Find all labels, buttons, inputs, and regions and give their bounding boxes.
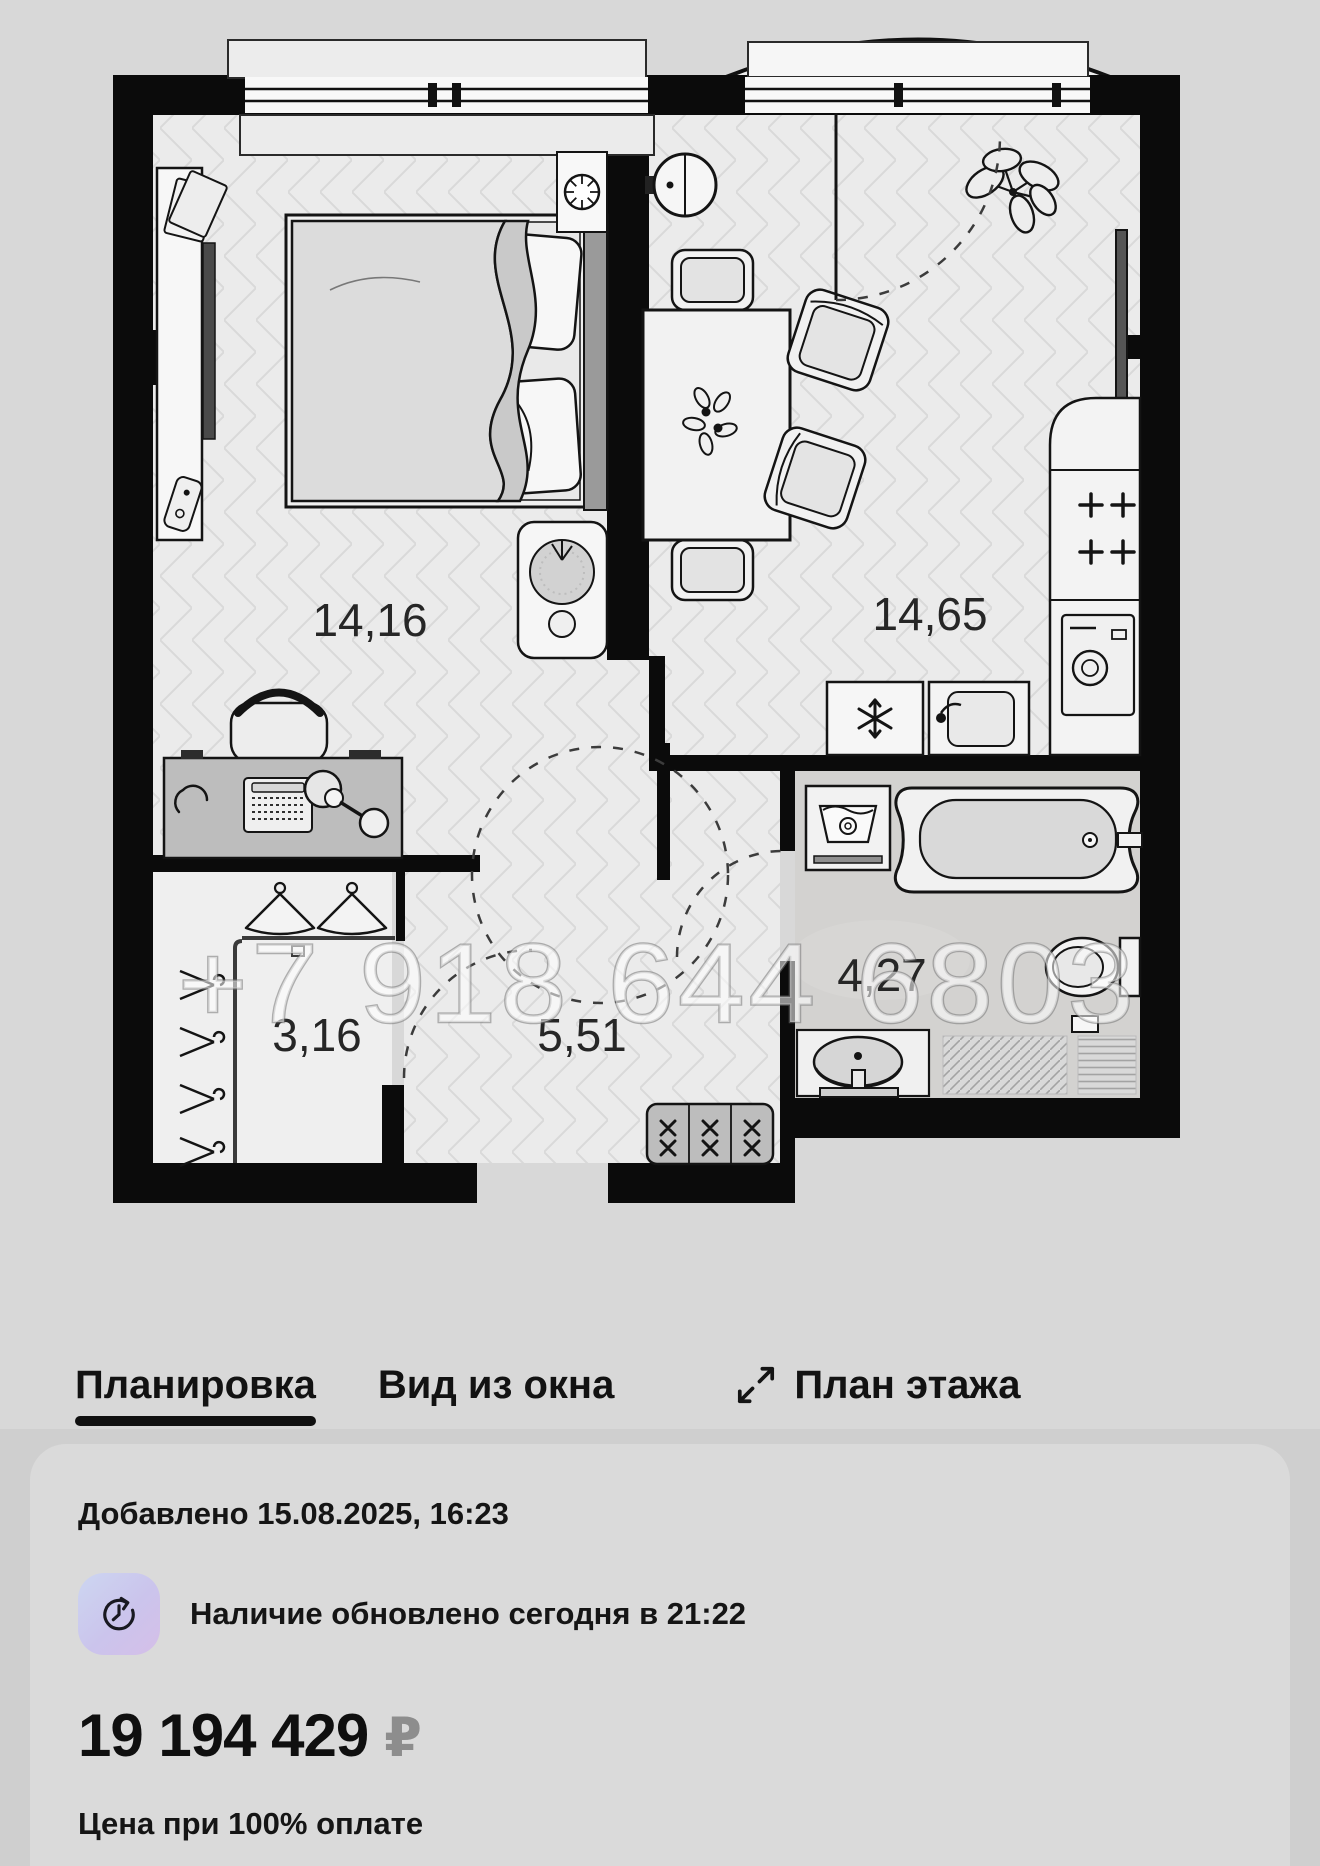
price-value: 19 194 429 (78, 1701, 368, 1770)
price-row: 19 194 429 ₽ (78, 1701, 1242, 1770)
info-card: Добавлено 15.08.2025, 16:23 Наличие обно… (30, 1444, 1290, 1866)
tab-floor-plan[interactable]: План этажа (734, 1362, 1020, 1408)
area-label-bedroom: 14,16 (312, 594, 427, 646)
floor-plan-image[interactable]: 14,16 14,65 3,16 5,51 4,27 +7 918 644 68… (0, 0, 1320, 1298)
media-tabs: Планировка Вид из окна План этажа (0, 1298, 1320, 1426)
dining-chair (672, 250, 753, 310)
availability-row: Наличие обновлено сегодня в 21:22 (78, 1573, 1242, 1655)
tab-window-view[interactable]: Вид из окна (378, 1362, 614, 1408)
bed (286, 212, 607, 510)
kitchen-counter (1050, 398, 1140, 755)
lower-section: Добавлено 15.08.2025, 16:23 Наличие обно… (0, 1429, 1320, 1866)
availability-clock-icon (78, 1573, 160, 1655)
tab-layout-label: Планировка (75, 1362, 316, 1408)
fridge (827, 682, 923, 755)
desk-chair (231, 703, 327, 763)
dining-chair (672, 540, 753, 600)
blanket (292, 221, 513, 501)
area-label-living-kitchen: 14,65 (872, 588, 987, 640)
oven (1062, 615, 1134, 715)
tab-layout[interactable]: Планировка (75, 1362, 316, 1426)
laptop (244, 778, 312, 832)
bedroom-window (228, 40, 654, 155)
price-note: Цена при 100% оплате (78, 1806, 1242, 1842)
floor-plan-svg: 14,16 14,65 3,16 5,51 4,27 +7 918 644 68… (0, 0, 1320, 1298)
active-tab-underline (75, 1416, 316, 1426)
currency-ruble-sign: ₽ (384, 1706, 422, 1769)
availability-text: Наличие обновлено сегодня в 21:22 (190, 1596, 746, 1632)
wall-fan (557, 152, 607, 232)
phone-watermark: +7 918 644 6803 (178, 921, 1138, 1046)
kitchen-sink (929, 682, 1029, 755)
tab-floor-plan-label: План этажа (794, 1362, 1020, 1408)
bedroom-tv (203, 243, 215, 439)
washing-machine (806, 786, 890, 870)
balcony-window (745, 42, 1090, 113)
entry-bench (647, 1104, 773, 1164)
headboard (584, 212, 607, 510)
nightstand (518, 522, 607, 658)
apartment-listing-screen: 14,16 14,65 3,16 5,51 4,27 +7 918 644 68… (0, 0, 1320, 1866)
tab-window-view-label: Вид из окна (378, 1362, 614, 1408)
bathtub (895, 788, 1142, 892)
added-date: Добавлено 15.08.2025, 16:23 (78, 1496, 1242, 1532)
expand-icon (734, 1363, 778, 1407)
